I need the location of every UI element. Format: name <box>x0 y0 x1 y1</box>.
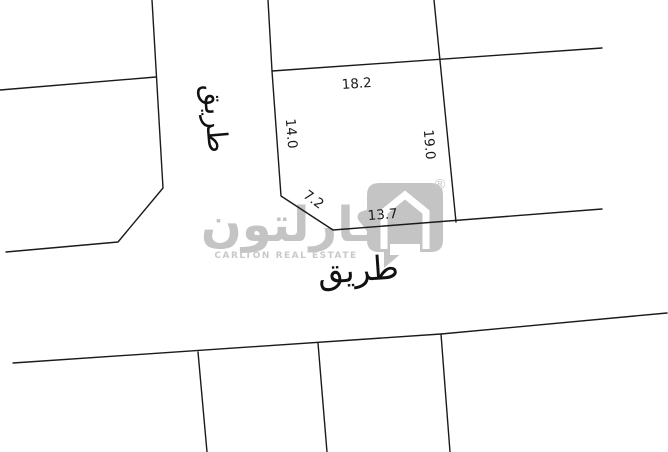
dimension-left-14-0: 14.0 <box>282 118 301 149</box>
survey-plot-diagram: كارلتون ® CARLTON REAL ESTATE <box>0 0 668 452</box>
vertical-road-arabic-label: طريق <box>196 82 235 154</box>
horizontal-road-arabic-label: طريق <box>316 247 400 293</box>
bottom-road-south-edge-line <box>13 313 667 363</box>
plot-map-canvas: كارلتون ® CARLTON REAL ESTATE <box>0 0 668 452</box>
plot-north-boundary-line <box>272 48 602 71</box>
dimension-right-19-0: 19.0 <box>420 129 439 160</box>
left-road-west-edge-line <box>6 0 163 252</box>
dimension-top-18-2: 18.2 <box>341 75 372 93</box>
watermark-arabic-brand-text: كارلتون <box>201 197 383 253</box>
lower-block-divider-line-2 <box>318 343 327 452</box>
lower-block-divider-line-3 <box>441 334 450 452</box>
upper-left-block-boundary-line <box>0 77 156 90</box>
lower-block-divider-line-1 <box>198 352 207 452</box>
dimension-bottom-13-7: 13.7 <box>367 206 398 224</box>
registered-trademark-symbol: ® <box>433 177 447 193</box>
